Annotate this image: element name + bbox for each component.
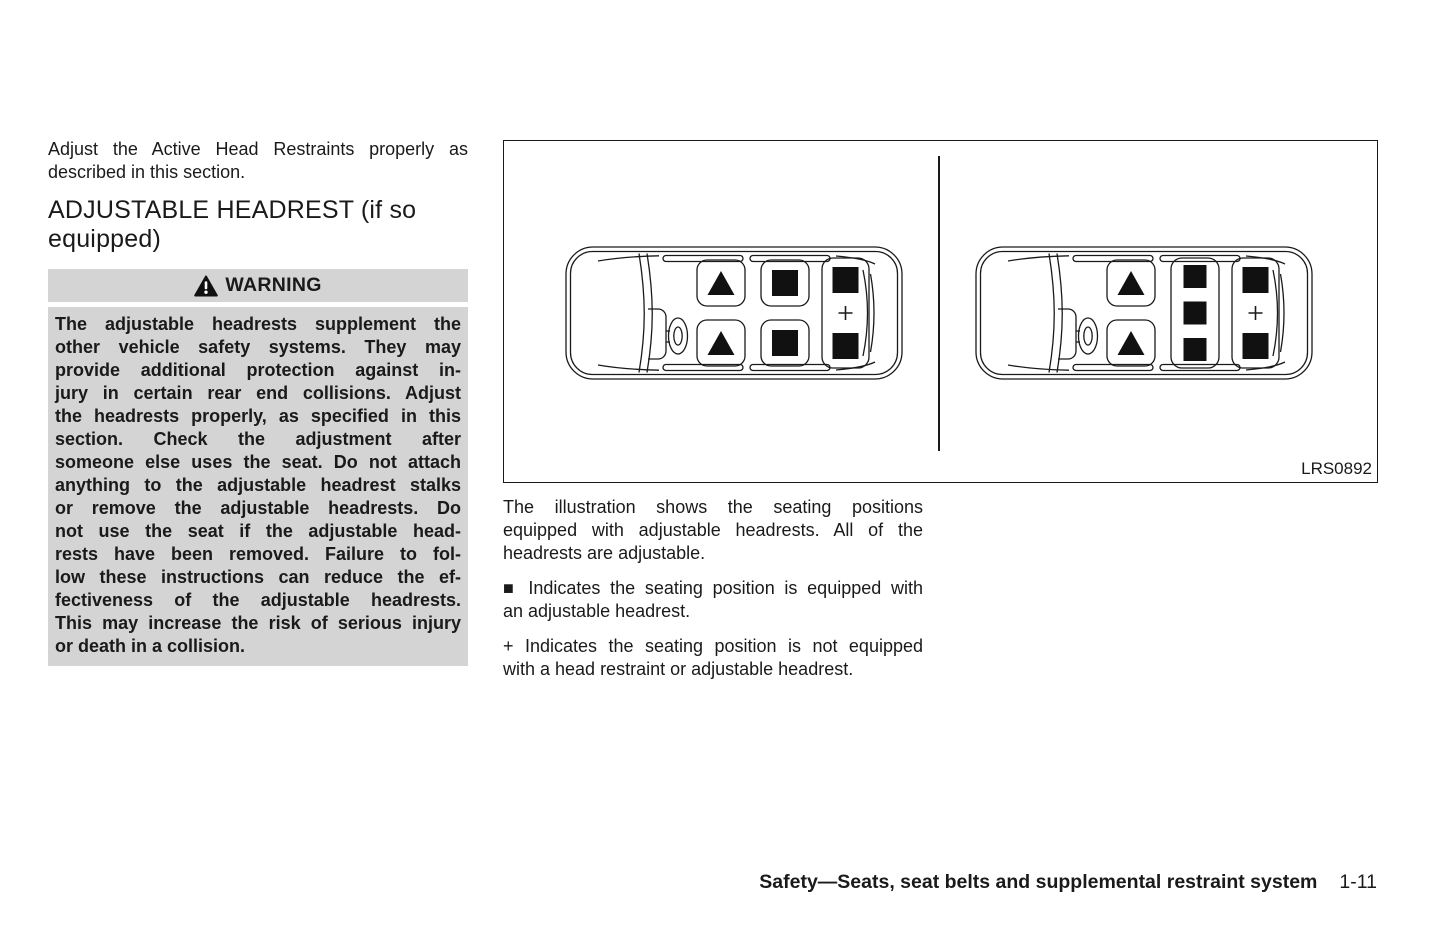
- text-line: the headrests properly, as specified in …: [55, 405, 461, 428]
- square-symbol: [1184, 265, 1207, 288]
- text-line: provide additional protection against in…: [55, 359, 461, 382]
- steering-wheel: [1079, 318, 1098, 354]
- figure-divider: [938, 156, 940, 451]
- square-symbol-note: ■ Indicates the seating position is equi…: [503, 577, 923, 623]
- warning-title: WARNING: [225, 274, 321, 297]
- text-line: described in this section.: [48, 161, 468, 184]
- triangle-symbol: [708, 331, 735, 355]
- text-line: low these instructions can reduce the ef…: [55, 566, 461, 589]
- windshield-line: [1049, 254, 1054, 373]
- text-line: ADJUSTABLE HEADREST (if so: [48, 196, 468, 225]
- steering-wheel: [669, 318, 688, 354]
- section-heading: ADJUSTABLE HEADREST (if soequipped): [48, 196, 468, 254]
- windshield-line: [1057, 254, 1062, 373]
- left-column: Adjust the Active Head Restraints proper…: [48, 138, 468, 666]
- plus-symbol-note: + Indicates the seating position is not …: [503, 635, 923, 681]
- text-line: jury in certain rear end collisions. Adj…: [55, 382, 461, 405]
- page-footer: Safety—Seats, seat belts and supplementa…: [759, 870, 1377, 894]
- triangle-symbol: [1118, 271, 1145, 295]
- triangle-symbol: [1118, 331, 1145, 355]
- square-symbol: [833, 333, 859, 359]
- page-number: 1-11: [1339, 870, 1377, 894]
- square-symbol: [1184, 302, 1207, 325]
- plus-symbol: [839, 306, 853, 320]
- rear-pillar-line: [836, 256, 875, 264]
- manual-page: Adjust the Active Head Restraints proper…: [0, 0, 1445, 929]
- text-line: Adjust the Active Head Restraints proper…: [48, 138, 468, 161]
- windshield-line: [647, 254, 652, 373]
- vehicle-diagram-left: [564, 245, 904, 381]
- text-line: with a head restraint or adjustable head…: [503, 658, 923, 681]
- rear-pillar-line: [1246, 256, 1285, 264]
- text-line: + Indicates the seating position is not …: [503, 635, 923, 658]
- text-line: ■ Indicates the seating position is equi…: [503, 577, 923, 600]
- a-pillar-line: [1008, 256, 1069, 261]
- text-line: other vehicle safety systems. They may: [55, 336, 461, 359]
- square-symbol: [772, 330, 798, 356]
- text-line: someone else uses the seat. Do not attac…: [55, 451, 461, 474]
- text-line: fectiveness of the adjustable headrests.: [55, 589, 461, 612]
- seat-symbols: [708, 267, 859, 359]
- footer-section-title: Safety—Seats, seat belts and supplementa…: [759, 870, 1317, 894]
- text-line: anything to the adjustable headrest stal…: [55, 474, 461, 497]
- text-line: equipped): [48, 225, 468, 254]
- square-symbol: [1243, 267, 1269, 293]
- text-line: or death in a collision.: [55, 635, 461, 658]
- figure-label: LRS0892: [1301, 460, 1372, 478]
- windshield-line: [639, 254, 644, 373]
- dashboard: [648, 309, 666, 359]
- text-line: rests have been removed. Failure to fol-: [55, 543, 461, 566]
- warning-triangle-icon: [194, 275, 218, 297]
- square-symbol: [772, 270, 798, 296]
- figure-box: LRS0892: [503, 140, 1378, 483]
- square-symbol: [1184, 338, 1207, 361]
- cargo-line: [1281, 274, 1285, 352]
- text-line: headrests are adjustable.: [503, 542, 923, 565]
- rear-pillar-line: [836, 362, 875, 370]
- text-line: equipped with adjustable headrests. All …: [503, 519, 923, 542]
- text-line: section. Check the adjustment after: [55, 428, 461, 451]
- rear-pillar-line: [1246, 362, 1285, 370]
- right-column: The illustration shows the seating posit…: [503, 496, 923, 681]
- a-pillar-line: [598, 365, 659, 370]
- plus-symbol: [1249, 306, 1263, 320]
- seat-symbols: [1118, 265, 1269, 361]
- text-line: The illustration shows the seating posit…: [503, 496, 923, 519]
- cargo-line: [871, 274, 875, 352]
- warning-box: WARNING The adjustable headrests supplem…: [48, 269, 468, 666]
- a-pillar-line: [598, 256, 659, 261]
- cargo-line: [1273, 270, 1278, 356]
- a-pillar-line: [1008, 365, 1069, 370]
- vehicle-diagram-right: [974, 245, 1314, 381]
- warning-header: WARNING: [48, 269, 468, 302]
- text-line: an adjustable headrest.: [503, 600, 923, 623]
- intro-paragraph: Adjust the Active Head Restraints proper…: [48, 138, 468, 184]
- figure-caption: The illustration shows the seating posit…: [503, 496, 923, 565]
- triangle-symbol: [708, 271, 735, 295]
- text-line: This may increase the risk of serious in…: [55, 612, 461, 635]
- square-symbol: [1243, 333, 1269, 359]
- square-symbol: [833, 267, 859, 293]
- text-line: The adjustable headrests supplement the: [55, 313, 461, 336]
- warning-body: The adjustable headrests supplement theo…: [48, 307, 468, 666]
- text-line: not use the seat if the adjustable head-: [55, 520, 461, 543]
- text-line: or remove the adjustable headrests. Do: [55, 497, 461, 520]
- cargo-line: [863, 270, 868, 356]
- dashboard: [1058, 309, 1076, 359]
